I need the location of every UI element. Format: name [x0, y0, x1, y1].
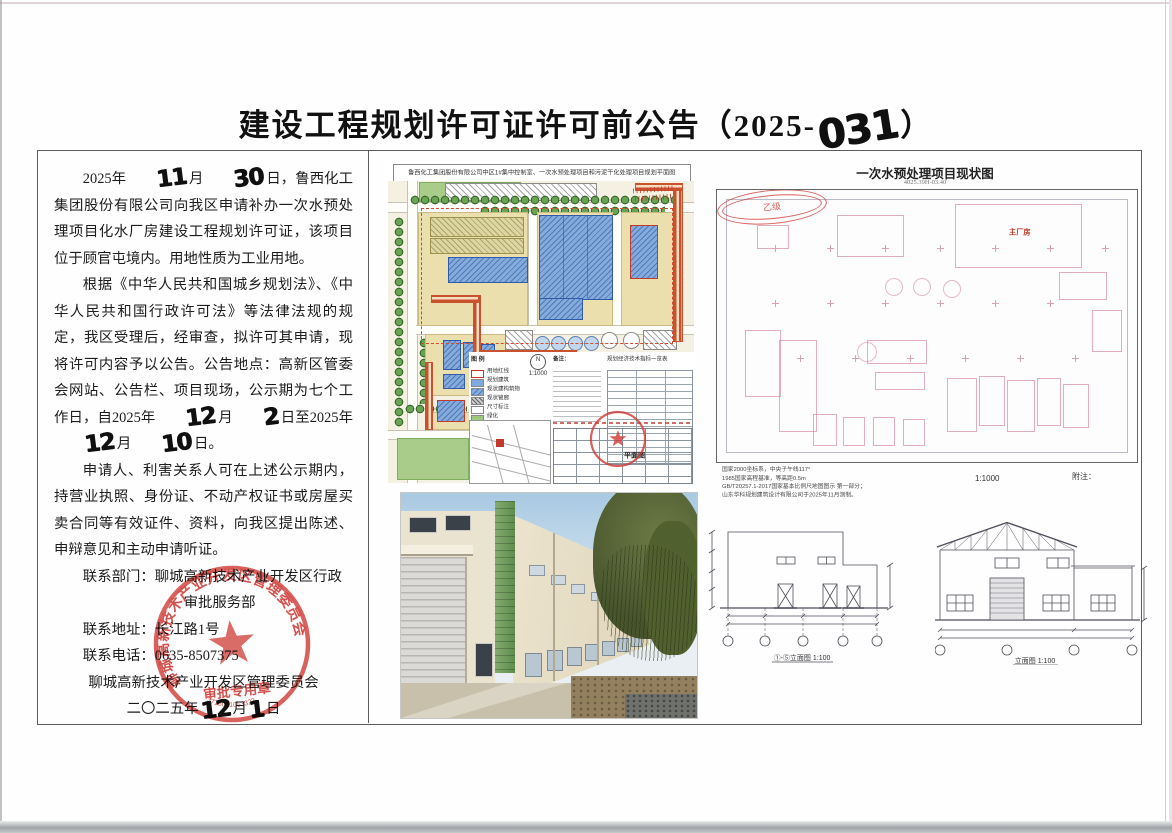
site-plan-title: 鲁西化工集团股份有限公司中区1#集中控制室、一次水预处理项目和污泥干化处理项目规… — [393, 164, 691, 182]
legend-swatch — [471, 397, 484, 405]
design-seal — [587, 408, 649, 470]
scale-label: 1:1000 — [527, 370, 549, 377]
legend-swatch — [471, 379, 484, 387]
scan-edge-top — [0, 2, 1172, 4]
elevation-drawing-right: 立面图 1:100 — [935, 510, 1150, 665]
downpipe — [553, 533, 555, 681]
map-scale: 1:1000 — [975, 474, 999, 483]
door — [475, 643, 493, 677]
column-divider — [368, 150, 369, 723]
handwritten-day: 2 — [233, 416, 280, 422]
willow-branches — [601, 545, 698, 661]
map-notes: 国家2000坐标系，中央子午线117° 1985国家高程基准，等高距0.5m G… — [722, 466, 873, 500]
elevation-label: 立面图 1:100 — [1015, 656, 1056, 665]
doc-title: 建设工程规划许可证许可前公告（2025-031） — [0, 100, 1172, 145]
green-ladder-tower — [495, 501, 515, 673]
rubble — [625, 694, 697, 718]
notice-paragraph-2: 根据《中华人民共和国城乡规划法》、《中华人民共和国行政许可法》等法律法规的规定，… — [54, 272, 353, 458]
tree-row — [394, 217, 404, 427]
site-photo — [400, 492, 698, 719]
legend-swatch — [471, 388, 484, 396]
doc-title-prefix: 建设工程规划许可证许可前公告（2025- — [239, 108, 816, 143]
legend: 图 例 用地红线 规划建筑 现状建构筑物 现状管廊 尺寸标注 绿化 — [471, 354, 525, 423]
orange-boundary — [425, 362, 433, 430]
key-plan — [469, 420, 551, 484]
north-arrow: N 1:1000 — [527, 354, 549, 381]
elevation-label: ①-⑤立面图 1:100 — [774, 653, 831, 662]
scanned-announcement-page: 建设工程规划许可证许可前公告（2025-031） 2025年11月30日，鲁西化… — [0, 0, 1172, 833]
legend-item: 尺寸标注 — [471, 405, 525, 414]
legend-swatch — [471, 406, 484, 414]
door-awning — [401, 545, 473, 556]
main-workshop-label: 主厂房 — [1009, 226, 1031, 237]
seal-star-icon — [609, 430, 626, 446]
orange-boundary — [431, 295, 479, 303]
window — [409, 517, 437, 533]
site-plan: 鲁西化工集团股份有限公司中区1#集中控制室、一次水预处理项目和污泥干化处理项目规… — [385, 162, 697, 488]
approval-seal: 聊城高新技术产业开发区管理委员会 审批专用章 3715001053322 — [140, 552, 325, 737]
status-map: 主厂房 乙级 — [716, 189, 1138, 463]
elevation-drawing-left: ①-⑤立面图 1:100 — [700, 513, 945, 663]
handwritten-day: 10 — [131, 441, 193, 449]
seal-star-icon — [207, 618, 257, 666]
doc-title-suffix: ） — [900, 108, 933, 143]
notice-paragraph-1: 2025年11月30日，鲁西化工集团股份有限公司向我区申请补办一次水预处理项目化… — [54, 166, 353, 272]
handwritten-month: 11 — [126, 176, 188, 184]
handwritten-month: 12 — [156, 415, 218, 423]
doc-title-number-handwritten: 031 — [816, 123, 899, 136]
handwritten-day: 30 — [204, 176, 266, 184]
legend-swatch — [471, 370, 484, 378]
plan-doc-zone: 图 例 用地红线 规划建筑 现状建构筑物 现状管廊 尺寸标注 绿化 N 1:10… — [469, 352, 694, 485]
orange-boundary — [673, 190, 683, 342]
red-boundary-line — [421, 208, 673, 344]
status-map-subtitle: 4025.39H-03.40 — [802, 179, 1049, 186]
key-plan-marker — [496, 439, 504, 447]
annex-label: 附注： — [1072, 471, 1096, 482]
window — [445, 515, 471, 531]
notice-paragraph-3: 申请人、利害关系人可在上述公示期内，持营业执照、身份证、不动产权证书或房屋买卖合… — [54, 458, 353, 564]
scan-edge-bottom — [0, 821, 1172, 833]
handwritten-month: 12 — [54, 441, 116, 449]
